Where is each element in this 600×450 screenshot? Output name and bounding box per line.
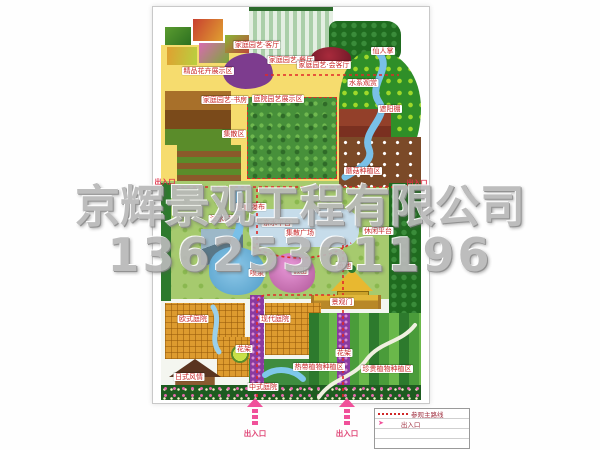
- deck-round-table: [231, 345, 249, 363]
- legend-row-route: 参观主路线: [375, 409, 469, 419]
- legend-box: 参观主路线 ➤ 出入口: [374, 408, 470, 449]
- entrance-arrow-dash: [344, 415, 350, 419]
- zone-terrace-garden: [177, 145, 241, 181]
- screenshot-canvas: 精品花卉展示区家庭园艺·客厅家庭园艺·餐厅家庭园艺·会客厅家庭园艺·书房庭院园艺…: [0, 0, 600, 450]
- zone-bottom-hedge: [161, 385, 421, 400]
- legend-row-empty-1: [375, 429, 469, 439]
- entrance-arrow-dash: [252, 421, 258, 425]
- garden-gate: [311, 295, 381, 309]
- zone-pink-rockery: [269, 253, 315, 293]
- dotted-route-icon: [378, 413, 408, 415]
- zone-flower-tile-1: [165, 27, 191, 45]
- entrance-arrow-dash: [344, 421, 350, 425]
- legend-route-label: 参观主路线: [411, 409, 444, 419]
- pavilion-finial: [348, 265, 356, 273]
- zone-plaza-walk: [249, 209, 359, 247]
- entrance-marker-right: 出入口: [334, 398, 360, 439]
- zone-wisteria-strip-west: [250, 295, 264, 399]
- zone-flower-tile-2: [193, 19, 223, 41]
- entrance-arrow-dash: [252, 409, 258, 413]
- entrance-arrow-icon: [339, 398, 355, 407]
- legend-row-empty-2: [375, 439, 469, 448]
- zone-central-garden: [247, 97, 337, 179]
- entrance-arrow-dash: [252, 415, 258, 419]
- zone-pond: [209, 247, 265, 295]
- zone-wood-pavilion-photo: [165, 91, 231, 145]
- entrance-marker-left: 出入口: [242, 398, 268, 439]
- entrance-label: 出入口: [242, 428, 268, 439]
- entrance-arrow-dash: [344, 409, 350, 413]
- zone-left-hedge: [161, 183, 171, 301]
- entrance-arrow-icon: ➤: [378, 420, 384, 427]
- zone-brick-pergola: [339, 109, 391, 137]
- entrance-arrow-icon: [247, 398, 263, 407]
- entrance-label: 出入口: [334, 428, 360, 439]
- zone-purple-flowerbed: [223, 53, 273, 89]
- legend-entrance-label: 出入口: [401, 419, 421, 429]
- legend-row-entrance: ➤ 出入口: [375, 419, 469, 429]
- plan-sheet: 精品花卉展示区家庭园艺·客厅家庭园艺·餐厅家庭园艺·会客厅家庭园艺·书房庭院园艺…: [152, 6, 430, 404]
- zone-red-canopy: [311, 47, 351, 69]
- zone-flower-tile-5: [225, 35, 249, 53]
- zone-flower-tile-3: [167, 47, 197, 65]
- zone-mushroom-soil: [339, 137, 421, 187]
